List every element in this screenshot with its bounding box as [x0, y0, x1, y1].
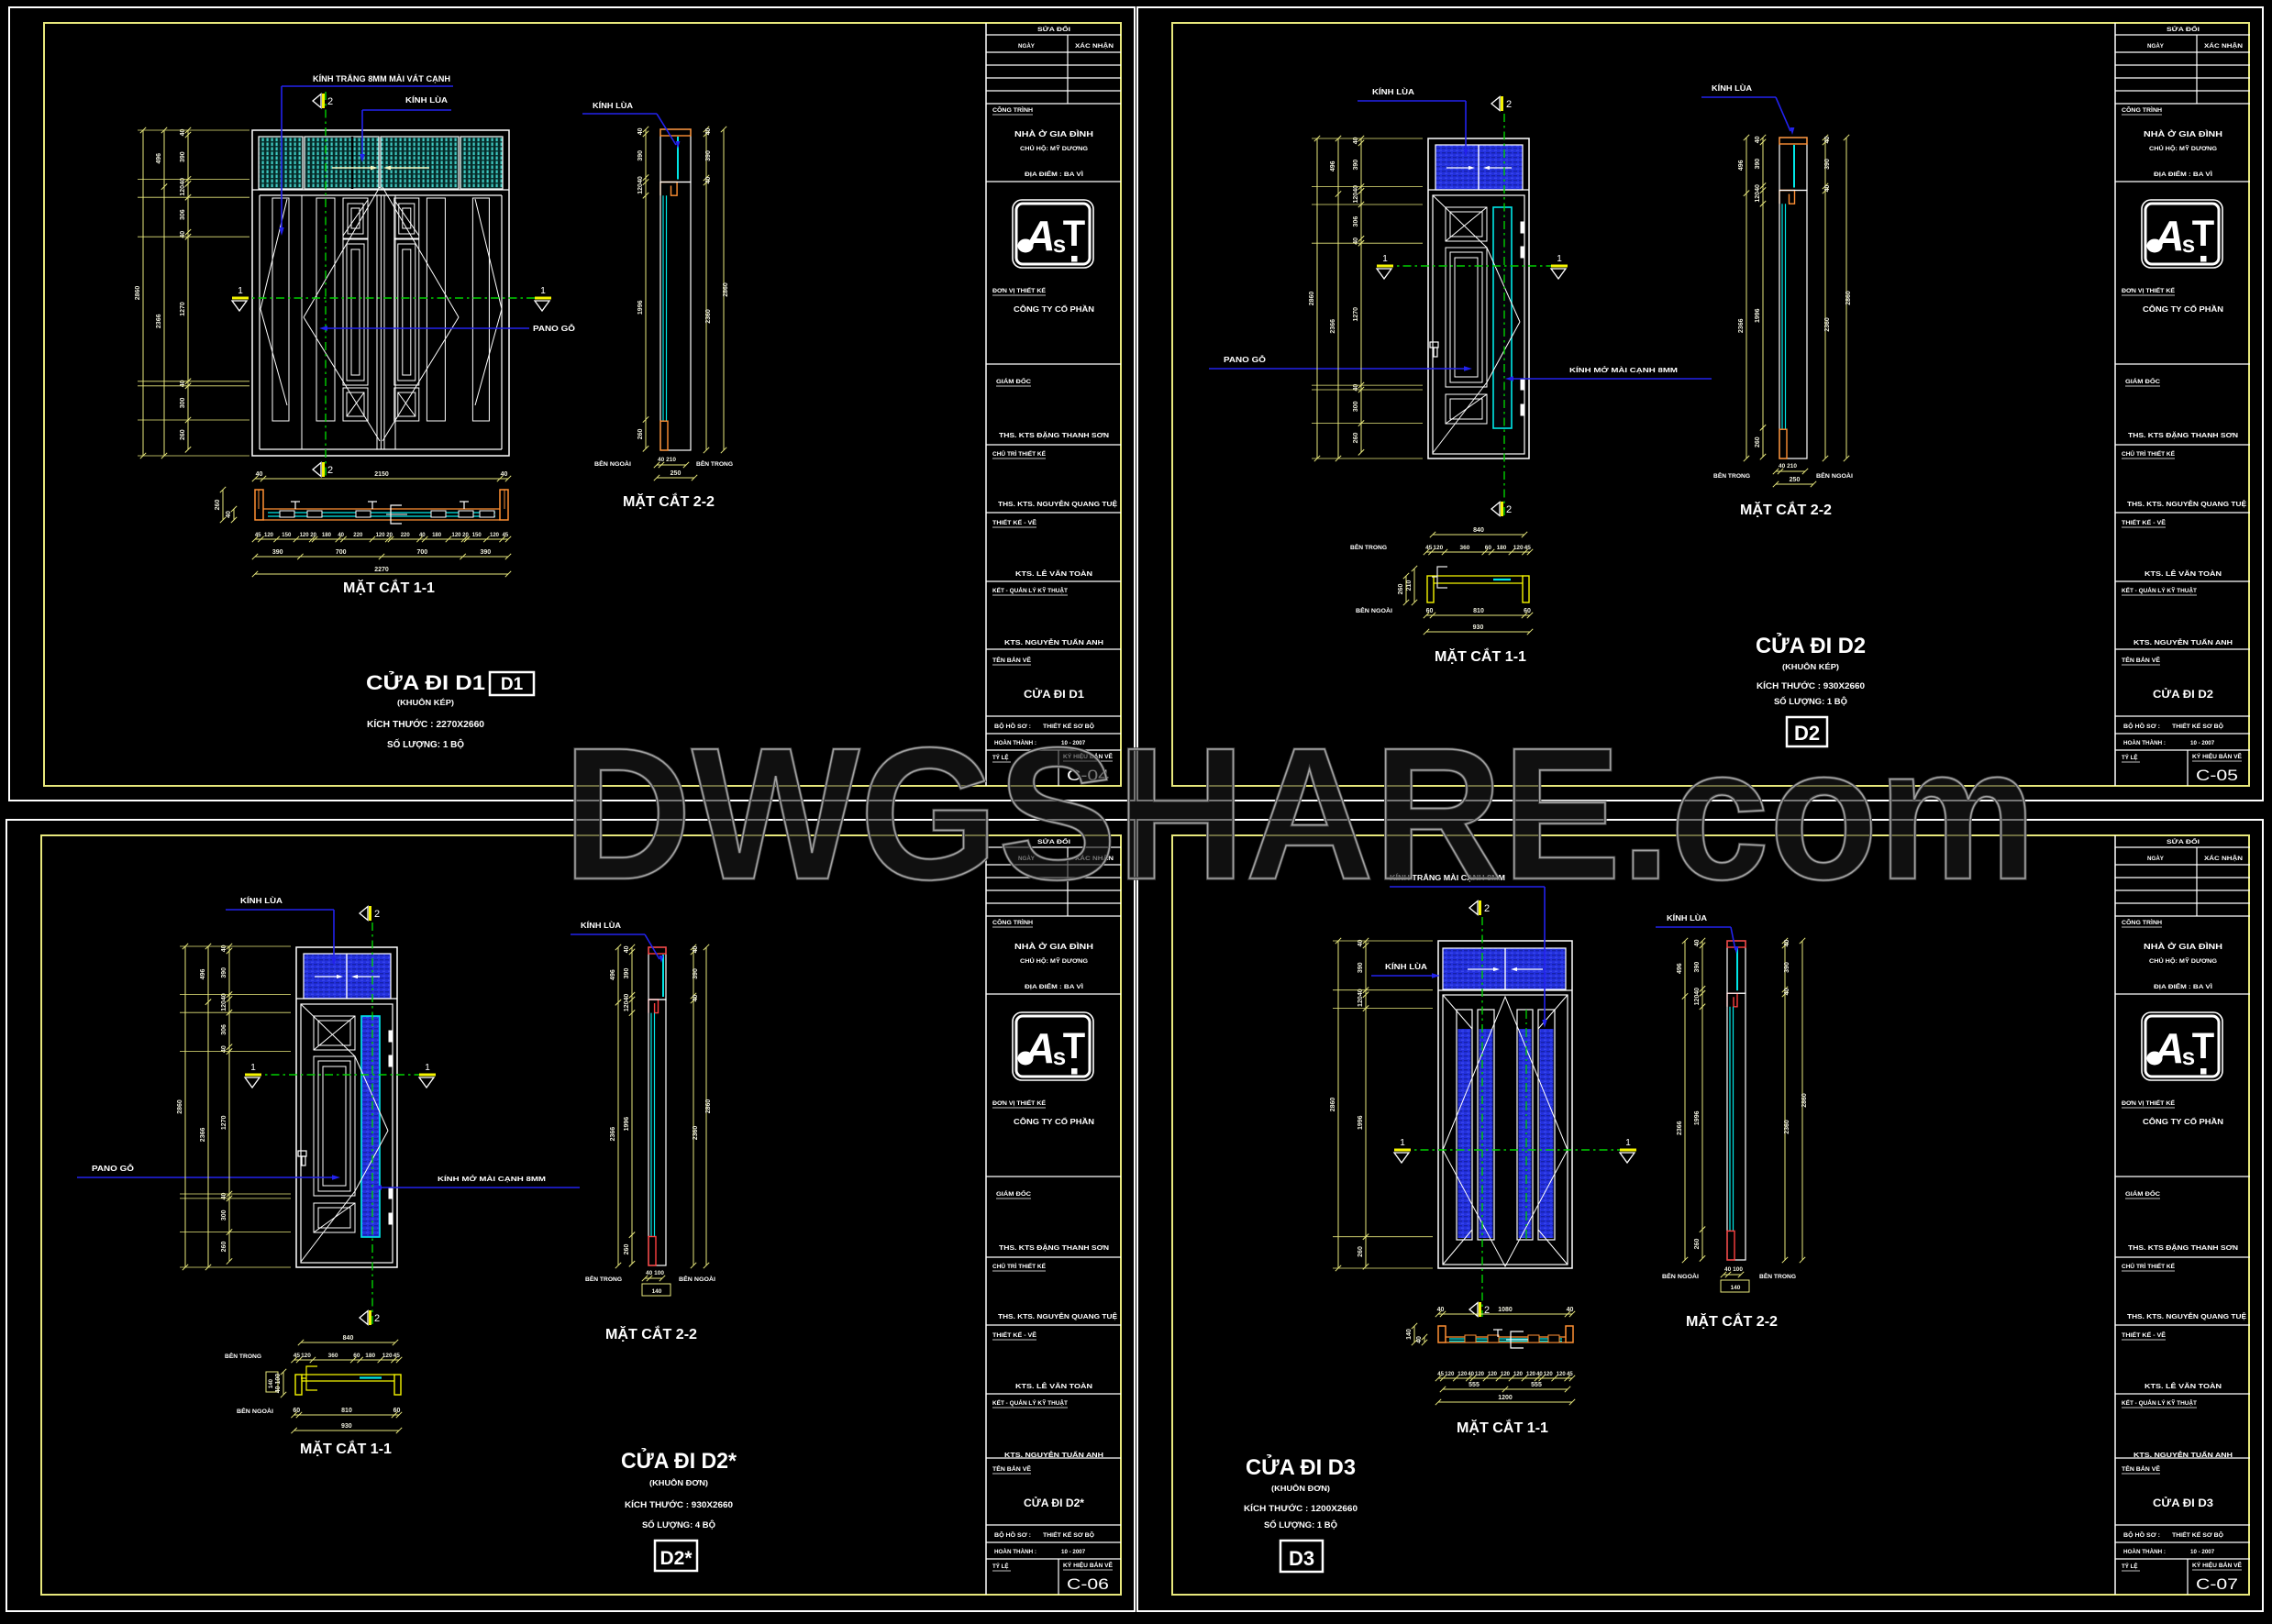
svg-text:40: 40 [624, 994, 630, 1001]
svg-text:220: 220 [401, 533, 411, 538]
svg-text:THIẾT KẾ - VẼ: THIẾT KẾ - VẼ [992, 1332, 1036, 1339]
svg-text:KÍNH LÙA: KÍNH LÙA [593, 102, 633, 110]
svg-text:2366: 2366 [1677, 1121, 1683, 1135]
svg-text:T: T [1063, 1026, 1085, 1066]
svg-text:40: 40 [693, 995, 699, 1002]
svg-text:390: 390 [1755, 159, 1761, 170]
svg-text:NGÀY: NGÀY [2147, 856, 2165, 862]
svg-text:40: 40 [1567, 1307, 1574, 1313]
svg-text:40: 40 [705, 177, 712, 184]
svg-text:390: 390 [1694, 962, 1701, 973]
svg-text:PANO GỖ: PANO GỖ [533, 323, 575, 333]
svg-text:KÍNH TRẮNG 8MM MÀI VÁT CẠNH: KÍNH TRẮNG 8MM MÀI VÁT CẠNH [313, 74, 450, 84]
svg-text:T: T [1063, 214, 1085, 254]
svg-text:390: 390 [1358, 962, 1364, 973]
svg-text:120: 120 [1755, 192, 1761, 203]
svg-text:2860: 2860 [177, 1099, 183, 1114]
svg-text:C-05: C-05 [2196, 767, 2238, 784]
svg-text:MẶT CẮT 2-2: MẶT CẮT 2-2 [1740, 501, 1832, 518]
svg-text:KÝ HIỆU BẢN VẼ: KÝ HIỆU BẢN VẼ [2192, 753, 2242, 760]
svg-text:260: 260 [1358, 1246, 1364, 1257]
svg-text:390: 390 [272, 549, 283, 556]
svg-text:140: 140 [269, 1378, 274, 1388]
svg-text:CỬA ĐI D3: CỬA ĐI D3 [1246, 1453, 1356, 1480]
svg-text:THS. KTS ĐẶNG THANH SƠN: THS. KTS ĐẶNG THANH SƠN [2128, 1243, 2238, 1252]
svg-text:HOÀN THÀNH :: HOÀN THÀNH : [2123, 1549, 2166, 1555]
svg-text:TỶ LỆ: TỶ LỆ [992, 1563, 1009, 1570]
svg-text:120: 120 [1445, 1372, 1455, 1377]
svg-text:KÍCH THƯỚC : 930X2660: KÍCH THƯỚC : 930X2660 [625, 1499, 733, 1510]
svg-text:2: 2 [1506, 99, 1512, 110]
svg-text:930: 930 [1473, 624, 1484, 631]
svg-text:NHÀ Ở GIA ĐÌNH: NHÀ Ở GIA ĐÌNH [1014, 128, 1093, 138]
svg-text:2360: 2360 [1784, 1120, 1790, 1134]
svg-text:MẶT CẮT 2-2: MẶT CẮT 2-2 [605, 1325, 697, 1342]
svg-text:390: 390 [624, 968, 630, 979]
svg-text:CHỦ TRÌ THIẾT KẾ: CHỦ TRÌ THIẾT KẾ [992, 450, 1046, 458]
svg-text:CÔNG TRÌNH: CÔNG TRÌNH [2122, 106, 2163, 114]
svg-text:KTS. LÊ VĂN TOÀN: KTS. LÊ VĂN TOÀN [2145, 1382, 2222, 1390]
svg-text:T: T [2192, 1026, 2214, 1066]
svg-text:260: 260 [215, 500, 221, 511]
svg-text:A: A [1024, 1024, 1055, 1072]
svg-text:THIẾT KẾ SƠ BỘ: THIẾT KẾ SƠ BỘ [2172, 1531, 2223, 1539]
svg-text:C-07: C-07 [2196, 1575, 2238, 1593]
svg-text:496: 496 [1677, 963, 1683, 974]
svg-text:40: 40 [1536, 1372, 1543, 1377]
svg-text:120: 120 [624, 1000, 630, 1011]
svg-text:360: 360 [328, 1353, 338, 1359]
svg-text:150: 150 [472, 533, 482, 538]
svg-text:120: 120 [382, 1353, 393, 1359]
svg-text:390: 390 [221, 967, 227, 978]
svg-text:TÊN BẢN VẼ: TÊN BẢN VẼ [992, 657, 1031, 664]
svg-text:300: 300 [1353, 401, 1359, 412]
svg-text:KÍCH THƯỚC : 1200X2660: KÍCH THƯỚC : 1200X2660 [1244, 1503, 1358, 1514]
svg-text:390: 390 [1353, 160, 1359, 171]
svg-text:40: 40 [221, 945, 227, 952]
svg-text:XÁC NHẬN: XÁC NHẬN [1075, 43, 1114, 50]
svg-text:THS. KTS. NGUYỄN QUANG TUỆ: THS. KTS. NGUYỄN QUANG TUỆ [2127, 500, 2246, 508]
svg-text:THS. KTS. NGUYỄN QUANG TUỆ: THS. KTS. NGUYỄN QUANG TUỆ [2127, 1312, 2246, 1320]
svg-text:390: 390 [1784, 962, 1790, 973]
svg-text:150: 150 [282, 533, 292, 538]
svg-text:ĐỊA ĐIỂM : BA VÌ: ĐỊA ĐIỂM : BA VÌ [1025, 170, 1083, 178]
svg-text:PANO GỖ: PANO GỖ [1224, 354, 1266, 364]
svg-text:1: 1 [1400, 1138, 1405, 1148]
svg-text:2360: 2360 [693, 1126, 699, 1141]
svg-text:120: 120 [221, 1000, 227, 1011]
svg-text:KÍNH LÙA: KÍNH LÙA [405, 94, 448, 105]
svg-text:930: 930 [341, 1423, 352, 1430]
svg-text:CÔNG TRÌNH: CÔNG TRÌNH [992, 919, 1034, 926]
svg-text:1996: 1996 [624, 1117, 630, 1132]
svg-text:GIÁM ĐỐC: GIÁM ĐỐC [2125, 1191, 2161, 1198]
svg-text:120: 120 [490, 533, 500, 538]
svg-text:KẾT - QUẢN LÝ KỸ THUẬT: KẾT - QUẢN LÝ KỸ THUẬT [992, 1400, 1068, 1407]
svg-text:40 100: 40 100 [1724, 1266, 1743, 1273]
svg-text:20: 20 [462, 533, 469, 538]
svg-text:TỶ LỆ: TỶ LỆ [2122, 1563, 2138, 1570]
svg-text:KẾT - QUẢN LÝ KỸ THUẬT: KẾT - QUẢN LÝ KỸ THUẬT [2122, 1400, 2197, 1407]
svg-text:390: 390 [693, 968, 699, 979]
svg-text:CỬA ĐI D2*: CỬA ĐI D2* [621, 1447, 737, 1474]
svg-text:KÍNH LÙA: KÍNH LÙA [240, 895, 283, 905]
svg-text:MẶT CẮT 1-1: MẶT CẮT 1-1 [1435, 647, 1526, 665]
svg-text:390: 390 [180, 151, 186, 162]
svg-text:10 - 2007: 10 - 2007 [2190, 1549, 2215, 1555]
svg-text:THS. KTS ĐẶNG THANH SƠN: THS. KTS ĐẶNG THANH SƠN [999, 1243, 1109, 1252]
svg-text:360: 360 [1459, 545, 1469, 551]
svg-text:2270: 2270 [374, 567, 389, 573]
svg-text:40: 40 [1755, 184, 1761, 192]
svg-text:SỬA ĐỔI: SỬA ĐỔI [2167, 837, 2200, 845]
svg-text:40: 40 [1824, 185, 1831, 193]
svg-text:45: 45 [502, 533, 508, 538]
svg-text:NHÀ Ở GIA ĐÌNH: NHÀ Ở GIA ĐÌNH [2144, 941, 2222, 951]
svg-text:SỬA ĐỔI: SỬA ĐỔI [2167, 25, 2200, 33]
svg-text:ĐƠN VỊ THIẾT KẾ: ĐƠN VỊ THIẾT KẾ [2122, 288, 2175, 294]
svg-text:1996: 1996 [1755, 308, 1761, 323]
svg-text:180: 180 [432, 533, 442, 538]
svg-text:496: 496 [1330, 160, 1336, 171]
svg-text:120: 120 [1544, 1372, 1554, 1377]
svg-text:2860: 2860 [1309, 292, 1315, 306]
svg-text:40: 40 [256, 471, 263, 478]
svg-text:810: 810 [341, 1408, 352, 1414]
svg-text:CÔNG TRÌNH: CÔNG TRÌNH [2122, 919, 2163, 926]
svg-text:ĐƠN VỊ THIẾT KẾ: ĐƠN VỊ THIẾT KẾ [992, 1100, 1046, 1107]
svg-text:MẶT CẮT 1-1: MẶT CẮT 1-1 [300, 1440, 392, 1457]
svg-text:40: 40 [693, 946, 699, 954]
svg-text:10 - 2007: 10 - 2007 [1061, 1549, 1086, 1555]
svg-text:NGÀY: NGÀY [1018, 43, 1036, 50]
svg-text:CỬA ĐI D1: CỬA ĐI D1 [1024, 687, 1084, 701]
svg-text:260: 260 [1755, 436, 1761, 447]
svg-text:700: 700 [336, 549, 347, 556]
svg-text:MẶT CẮT 1-1: MẶT CẮT 1-1 [1457, 1419, 1548, 1436]
svg-text:60: 60 [1524, 608, 1531, 614]
svg-text:A: A [2153, 212, 2184, 260]
svg-text:CHỦ HỘ: MỸ DƯƠNG: CHỦ HỘ: MỸ DƯƠNG [1020, 956, 1088, 965]
svg-text:KẾT - QUẢN LÝ KỸ THUẬT: KẾT - QUẢN LÝ KỸ THUẬT [992, 588, 1068, 594]
svg-text:KÍNH MỞ MÀI CẠNH 8MM: KÍNH MỞ MÀI CẠNH 8MM [1569, 366, 1678, 374]
svg-text:ĐỊA ĐIỂM : BA VÌ: ĐỊA ĐIỂM : BA VÌ [2154, 170, 2212, 178]
svg-text:CỬA ĐI D2*: CỬA ĐI D2* [1024, 1496, 1084, 1509]
svg-text:1996: 1996 [637, 300, 644, 315]
svg-text:CHỦ TRÌ THIẾT KẾ: CHỦ TRÌ THIẾT KẾ [992, 1263, 1046, 1270]
svg-text:HOÀN THÀNH :: HOÀN THÀNH : [994, 1549, 1036, 1555]
svg-text:2366: 2366 [200, 1128, 206, 1143]
svg-text:40: 40 [637, 127, 644, 135]
svg-text:120: 120 [1501, 1372, 1511, 1377]
svg-text:2: 2 [374, 909, 380, 920]
svg-text:40: 40 [1437, 1307, 1445, 1313]
svg-text:40: 40 [501, 471, 508, 478]
svg-text:40: 40 [1755, 136, 1761, 143]
svg-text:140: 140 [1406, 1329, 1413, 1340]
svg-text:120: 120 [301, 1353, 311, 1359]
svg-text:390: 390 [480, 549, 491, 556]
svg-text:60: 60 [1426, 608, 1434, 614]
svg-text:40: 40 [637, 176, 644, 183]
svg-text:555: 555 [1468, 1382, 1480, 1388]
svg-text:KÍNH LÙA: KÍNH LÙA [581, 922, 621, 930]
svg-text:NHÀ Ở GIA ĐÌNH: NHÀ Ở GIA ĐÌNH [1014, 941, 1093, 951]
svg-text:CÔNG TY CỔ PHẦN: CÔNG TY CỔ PHẦN [2143, 1117, 2223, 1126]
svg-text:2360: 2360 [705, 309, 712, 324]
svg-text:40: 40 [1694, 988, 1701, 995]
svg-text:45: 45 [1567, 1372, 1573, 1377]
svg-text:TÊN BẢN VẼ: TÊN BẢN VẼ [2122, 1465, 2160, 1473]
svg-text:BÊN NGOÀI: BÊN NGOÀI [594, 460, 631, 468]
svg-text:810: 810 [1473, 608, 1484, 614]
svg-text:KTS. LÊ VĂN TOÀN: KTS. LÊ VĂN TOÀN [1015, 569, 1092, 578]
svg-text:BÊN TRONG: BÊN TRONG [1350, 544, 1387, 551]
svg-text:D2*: D2* [659, 1548, 693, 1569]
svg-text:DWGSHARE.com: DWGSHARE.com [563, 709, 2036, 919]
svg-text:KÍNH LÙA: KÍNH LÙA [1385, 961, 1427, 971]
svg-text:260: 260 [180, 429, 186, 440]
svg-text:GIÁM ĐỐC: GIÁM ĐỐC [996, 379, 1032, 385]
svg-text:2360: 2360 [1824, 317, 1831, 332]
svg-text:THIẾT KẾ SƠ BỘ: THIẾT KẾ SƠ BỘ [1043, 1531, 1094, 1539]
svg-text:2860: 2860 [705, 1099, 712, 1114]
svg-text:BỘ HỒ SƠ :: BỘ HỒ SƠ : [2123, 723, 2160, 730]
svg-text:(KHUÔN KÉP): (KHUÔN KÉP) [1782, 663, 1839, 671]
svg-text:(KHUÔN ĐƠN): (KHUÔN ĐƠN) [1271, 1485, 1330, 1493]
svg-text:40: 40 [419, 533, 426, 538]
svg-text:60: 60 [293, 1408, 300, 1414]
svg-text:306: 306 [1353, 216, 1359, 227]
svg-text:250: 250 [671, 470, 682, 477]
svg-text:40: 40 [1468, 1372, 1474, 1377]
svg-text:40: 40 [338, 533, 344, 538]
svg-text:KTS. LÊ VĂN TOÀN: KTS. LÊ VĂN TOÀN [2145, 569, 2222, 578]
svg-text:60: 60 [353, 1353, 360, 1359]
svg-text:180: 180 [365, 1353, 375, 1359]
svg-text:1: 1 [540, 286, 546, 296]
svg-text:BÊN TRONG: BÊN TRONG [585, 1276, 622, 1283]
svg-text:60: 60 [1485, 545, 1492, 551]
svg-text:260: 260 [1694, 1239, 1701, 1250]
svg-text:2860: 2860 [1801, 1093, 1808, 1108]
svg-text:THS. KTS. NGUYỄN QUANG TUỆ: THS. KTS. NGUYỄN QUANG TUỆ [998, 500, 1117, 508]
svg-text:1996: 1996 [1358, 1115, 1364, 1130]
svg-text:120: 120 [1513, 1372, 1524, 1377]
svg-text:SỐ LƯỢNG: 4 BỘ: SỐ LƯỢNG: 4 BỘ [642, 1519, 715, 1530]
svg-text:THIẾT KẾ - VẼ: THIẾT KẾ - VẼ [992, 520, 1036, 526]
svg-text:A: A [2153, 1024, 2184, 1072]
svg-text:2366: 2366 [1738, 318, 1745, 333]
svg-text:120: 120 [300, 533, 310, 538]
svg-text:2860: 2860 [723, 282, 729, 297]
svg-text:45: 45 [393, 1353, 401, 1359]
svg-text:2150: 2150 [374, 471, 389, 478]
svg-text:120: 120 [1433, 545, 1443, 551]
svg-text:2860: 2860 [1330, 1098, 1336, 1112]
svg-text:NGÀY: NGÀY [2147, 43, 2165, 50]
svg-text:ĐƠN VỊ THIẾT KẾ: ĐƠN VỊ THIẾT KẾ [992, 288, 1046, 294]
svg-text:140: 140 [652, 1288, 662, 1295]
svg-text:120: 120 [264, 533, 274, 538]
svg-text:1: 1 [1557, 254, 1562, 264]
svg-text:KÍNH LÙA: KÍNH LÙA [1372, 86, 1414, 96]
svg-text:260: 260 [637, 428, 644, 439]
svg-text:120: 120 [1694, 995, 1701, 1006]
svg-text:306: 306 [180, 209, 186, 220]
svg-text:2366: 2366 [610, 1127, 616, 1142]
svg-text:40: 40 [624, 945, 630, 953]
svg-text:496: 496 [200, 968, 206, 979]
svg-text:BỘ HỒ SƠ :: BỘ HỒ SƠ : [2123, 1531, 2160, 1539]
svg-text:C-06: C-06 [1067, 1575, 1109, 1593]
svg-text:T: T [2192, 214, 2214, 254]
svg-text:KÝ HIỆU BẢN VẼ: KÝ HIỆU BẢN VẼ [2192, 1562, 2242, 1569]
svg-text:BÊN NGOÀI: BÊN NGOÀI [1662, 1273, 1699, 1280]
svg-text:2860: 2860 [1845, 291, 1852, 305]
svg-text:CÔNG TY CỔ PHẦN: CÔNG TY CỔ PHẦN [1014, 304, 1094, 314]
svg-text:496: 496 [156, 153, 162, 164]
svg-text:390: 390 [705, 150, 712, 161]
svg-text:40: 40 [705, 128, 712, 136]
svg-text:1: 1 [425, 1063, 430, 1073]
svg-text:2366: 2366 [156, 314, 162, 328]
svg-text:180: 180 [1497, 545, 1507, 551]
svg-text:CỬA ĐI D3: CỬA ĐI D3 [2153, 1496, 2213, 1509]
svg-text:220: 220 [353, 533, 363, 538]
svg-text:1996: 1996 [1694, 1110, 1701, 1125]
svg-text:120: 120 [180, 185, 186, 196]
svg-text:40: 40 [1416, 1336, 1423, 1343]
svg-text:BÊN TRONG: BÊN TRONG [1759, 1273, 1796, 1280]
svg-text:CÔNG TY CỔ PHẦN: CÔNG TY CỔ PHẦN [2143, 304, 2223, 314]
svg-text:120: 120 [1475, 1372, 1485, 1377]
svg-text:KTS. LÊ VĂN TOÀN: KTS. LÊ VĂN TOÀN [1015, 1382, 1092, 1390]
svg-text:1270: 1270 [180, 302, 186, 316]
svg-text:THIẾT KẾ - VẼ: THIẾT KẾ - VẼ [2122, 520, 2166, 526]
svg-text:CHỦ HỘ: MỸ DƯƠNG: CHỦ HỘ: MỸ DƯƠNG [1020, 144, 1088, 152]
svg-text:40 100: 40 100 [646, 1270, 664, 1276]
svg-text:THS. KTS. NGUYỄN QUANG TUỆ: THS. KTS. NGUYỄN QUANG TUỆ [998, 1312, 1117, 1320]
svg-text:MẶT CẮT 2-2: MẶT CẮT 2-2 [623, 492, 715, 510]
svg-text:40: 40 [1784, 989, 1790, 996]
svg-text:SỬA ĐỔI: SỬA ĐỔI [1037, 25, 1070, 33]
svg-text:MẶT CẮT 2-2: MẶT CẮT 2-2 [1686, 1312, 1778, 1330]
svg-text:260: 260 [624, 1244, 630, 1255]
svg-text:120: 120 [1557, 1372, 1567, 1377]
svg-text:KÍCH THƯỚC : 930X2660: KÍCH THƯỚC : 930X2660 [1757, 680, 1865, 691]
svg-text:BÊN NGOÀI: BÊN NGOÀI [1356, 607, 1392, 614]
svg-text:KÝ HIỆU BẢN VẼ: KÝ HIỆU BẢN VẼ [1063, 1562, 1113, 1569]
svg-text:KẾT - QUẢN LÝ KỸ THUẬT: KẾT - QUẢN LÝ KỸ THUẬT [2122, 588, 2197, 594]
svg-text:CÔNG TY CỔ PHẦN: CÔNG TY CỔ PHẦN [1014, 1117, 1094, 1126]
svg-text:1: 1 [1382, 254, 1388, 264]
svg-text:D3: D3 [1289, 1547, 1314, 1570]
svg-text:40: 40 [1353, 137, 1359, 144]
svg-text:140: 140 [1731, 1285, 1741, 1291]
svg-text:120: 120 [376, 533, 386, 538]
svg-text:40: 40 [1784, 940, 1790, 947]
svg-text:TỶ LỆ: TỶ LỆ [2122, 754, 2138, 761]
svg-text:BÊN TRONG: BÊN TRONG [1713, 472, 1750, 480]
svg-text:1: 1 [1625, 1138, 1631, 1148]
svg-text:306: 306 [221, 1024, 227, 1035]
svg-text:10 - 2007: 10 - 2007 [2190, 740, 2215, 746]
svg-text:260: 260 [1398, 584, 1404, 595]
svg-text:300: 300 [180, 397, 186, 408]
svg-text:20: 20 [386, 533, 393, 538]
svg-text:840: 840 [343, 1335, 354, 1342]
svg-text:MẶT CẮT 1-1: MẶT CẮT 1-1 [343, 579, 435, 596]
svg-text:THS. KTS ĐẶNG THANH SƠN: THS. KTS ĐẶNG THANH SƠN [999, 431, 1109, 439]
svg-text:BÊN TRONG: BÊN TRONG [696, 460, 733, 468]
svg-text:ĐỊA ĐIỂM : BA VÌ: ĐỊA ĐIỂM : BA VÌ [2154, 982, 2212, 990]
svg-text:BÊN NGOÀI: BÊN NGOÀI [237, 1408, 273, 1415]
svg-text:D1: D1 [501, 675, 524, 694]
svg-text:2: 2 [327, 465, 333, 476]
svg-text:40: 40 [1694, 939, 1701, 946]
svg-text:(KHUÔN ĐƠN): (KHUÔN ĐƠN) [649, 1479, 708, 1487]
svg-text:A: A [1024, 212, 1055, 260]
svg-text:120: 120 [1488, 1372, 1498, 1377]
svg-text:CỬA ĐI D1: CỬA ĐI D1 [366, 671, 485, 694]
svg-text:XÁC NHẬN: XÁC NHẬN [2204, 43, 2244, 50]
svg-text:45: 45 [294, 1353, 301, 1359]
svg-text:ĐỊA ĐIỂM : BA VÌ: ĐỊA ĐIỂM : BA VÌ [1025, 982, 1083, 990]
svg-text:40: 40 [1824, 137, 1831, 144]
svg-text:1: 1 [238, 286, 243, 296]
svg-text:840: 840 [1473, 527, 1484, 534]
svg-text:40 210: 40 210 [1779, 463, 1797, 470]
svg-text:GIÁM ĐỐC: GIÁM ĐỐC [2125, 379, 2161, 385]
svg-text:CỬA ĐI D2: CỬA ĐI D2 [1756, 632, 1866, 658]
svg-text:120: 120 [1513, 545, 1524, 551]
svg-text:(KHUÔN KÉP): (KHUÔN KÉP) [397, 699, 454, 707]
svg-text:PANO GỖ: PANO GỖ [92, 1163, 134, 1173]
svg-text:KÍNH LÙA: KÍNH LÙA [1712, 84, 1752, 93]
svg-text:THIẾT KẾ SƠ BỘ: THIẾT KẾ SƠ BỘ [2172, 723, 2223, 730]
svg-text:XÁC NHẬN: XÁC NHẬN [2204, 856, 2244, 862]
svg-text:180: 180 [322, 533, 332, 538]
svg-text:CHỦ HỘ: MỸ DƯƠNG: CHỦ HỘ: MỸ DƯƠNG [2149, 144, 2217, 152]
svg-text:250: 250 [1790, 477, 1801, 483]
svg-text:260: 260 [1353, 433, 1359, 444]
svg-text:300: 300 [221, 1210, 227, 1221]
svg-text:THS. KTS ĐẶNG THANH SƠN: THS. KTS ĐẶNG THANH SƠN [2128, 431, 2238, 439]
svg-text:20: 20 [310, 533, 316, 538]
svg-text:1200: 1200 [1498, 1395, 1513, 1401]
svg-text:45: 45 [1437, 1372, 1444, 1377]
svg-text:390: 390 [637, 150, 644, 161]
svg-text:496: 496 [1738, 160, 1745, 171]
svg-text:120: 120 [451, 533, 461, 538]
svg-text:120: 120 [637, 183, 644, 194]
svg-text:NHÀ Ở GIA ĐÌNH: NHÀ Ở GIA ĐÌNH [2144, 128, 2222, 138]
svg-text:40 210: 40 210 [658, 457, 676, 463]
svg-text:700: 700 [416, 549, 427, 556]
svg-text:120: 120 [1526, 1372, 1536, 1377]
svg-text:496: 496 [610, 969, 616, 980]
svg-text:1080: 1080 [1498, 1307, 1513, 1313]
svg-text:40: 40 [1353, 185, 1359, 193]
svg-text:TÊN BẢN VẼ: TÊN BẢN VẼ [2122, 657, 2160, 664]
svg-text:CỬA ĐI D2: CỬA ĐI D2 [2153, 687, 2213, 701]
svg-text:2366: 2366 [1330, 319, 1336, 334]
svg-text:390: 390 [1824, 159, 1831, 170]
svg-text:555: 555 [1531, 1382, 1542, 1388]
svg-text:210: 210 [1406, 580, 1413, 591]
